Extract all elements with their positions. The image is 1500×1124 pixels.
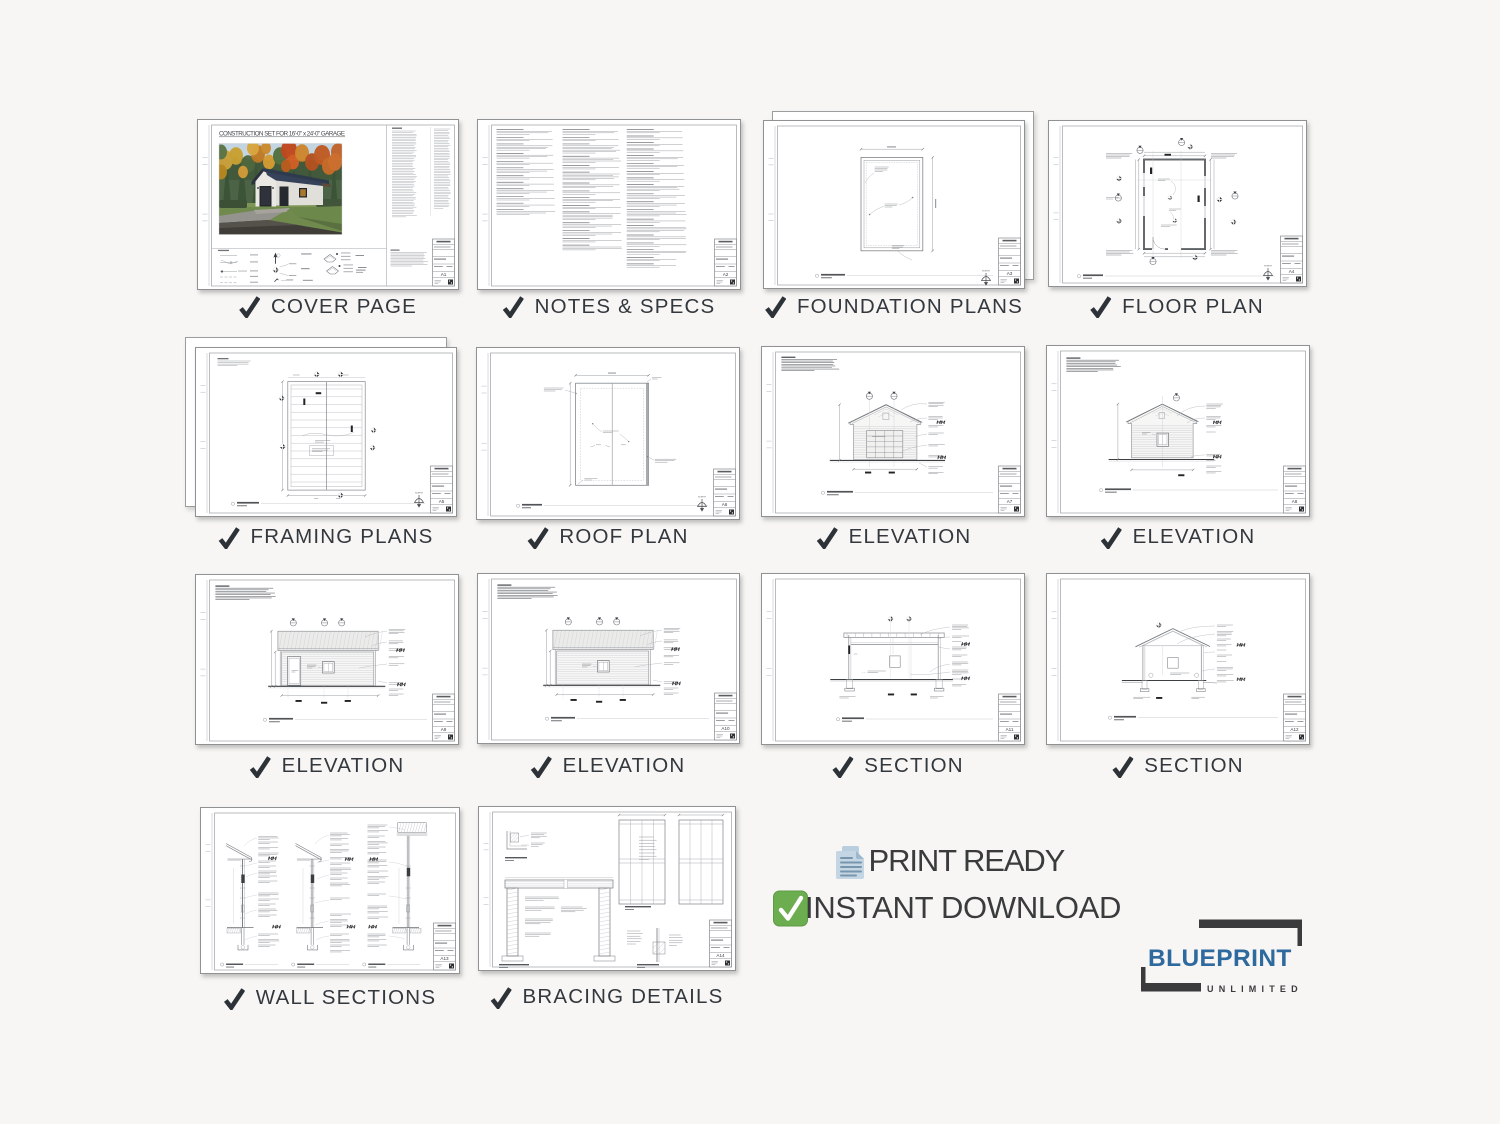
svg-text:A3: A3	[1007, 271, 1013, 276]
svg-text:NORTH: NORTH	[415, 493, 423, 495]
svg-text:A8: A8	[1292, 499, 1298, 504]
svg-text:A7: A7	[1007, 499, 1013, 504]
svg-text:BLUEPRINT: BLUEPRINT	[1148, 945, 1292, 972]
svg-text:A6: A6	[722, 502, 728, 507]
svg-text:A12: A12	[1290, 727, 1299, 732]
svg-text:A9: A9	[441, 727, 447, 732]
svg-text:NORTH: NORTH	[698, 497, 706, 499]
svg-text:NORTH: NORTH	[982, 271, 990, 273]
svg-text:A1: A1	[441, 272, 447, 277]
svg-text:A5: A5	[439, 499, 445, 504]
svg-text:CONSTRUCTION SET FOR 16'-0" x: CONSTRUCTION SET FOR 16'-0" x 24'-0" GAR…	[219, 130, 345, 137]
svg-text:UNLIMITED: UNLIMITED	[1207, 984, 1303, 994]
svg-text:A14: A14	[716, 953, 725, 958]
svg-text:A4: A4	[1289, 269, 1295, 274]
svg-text:A2: A2	[723, 272, 729, 277]
svg-text:A11: A11	[1006, 727, 1014, 732]
svg-text:A10: A10	[721, 726, 730, 731]
svg-text:A13: A13	[440, 956, 449, 961]
svg-text:NORTH: NORTH	[1264, 266, 1272, 268]
